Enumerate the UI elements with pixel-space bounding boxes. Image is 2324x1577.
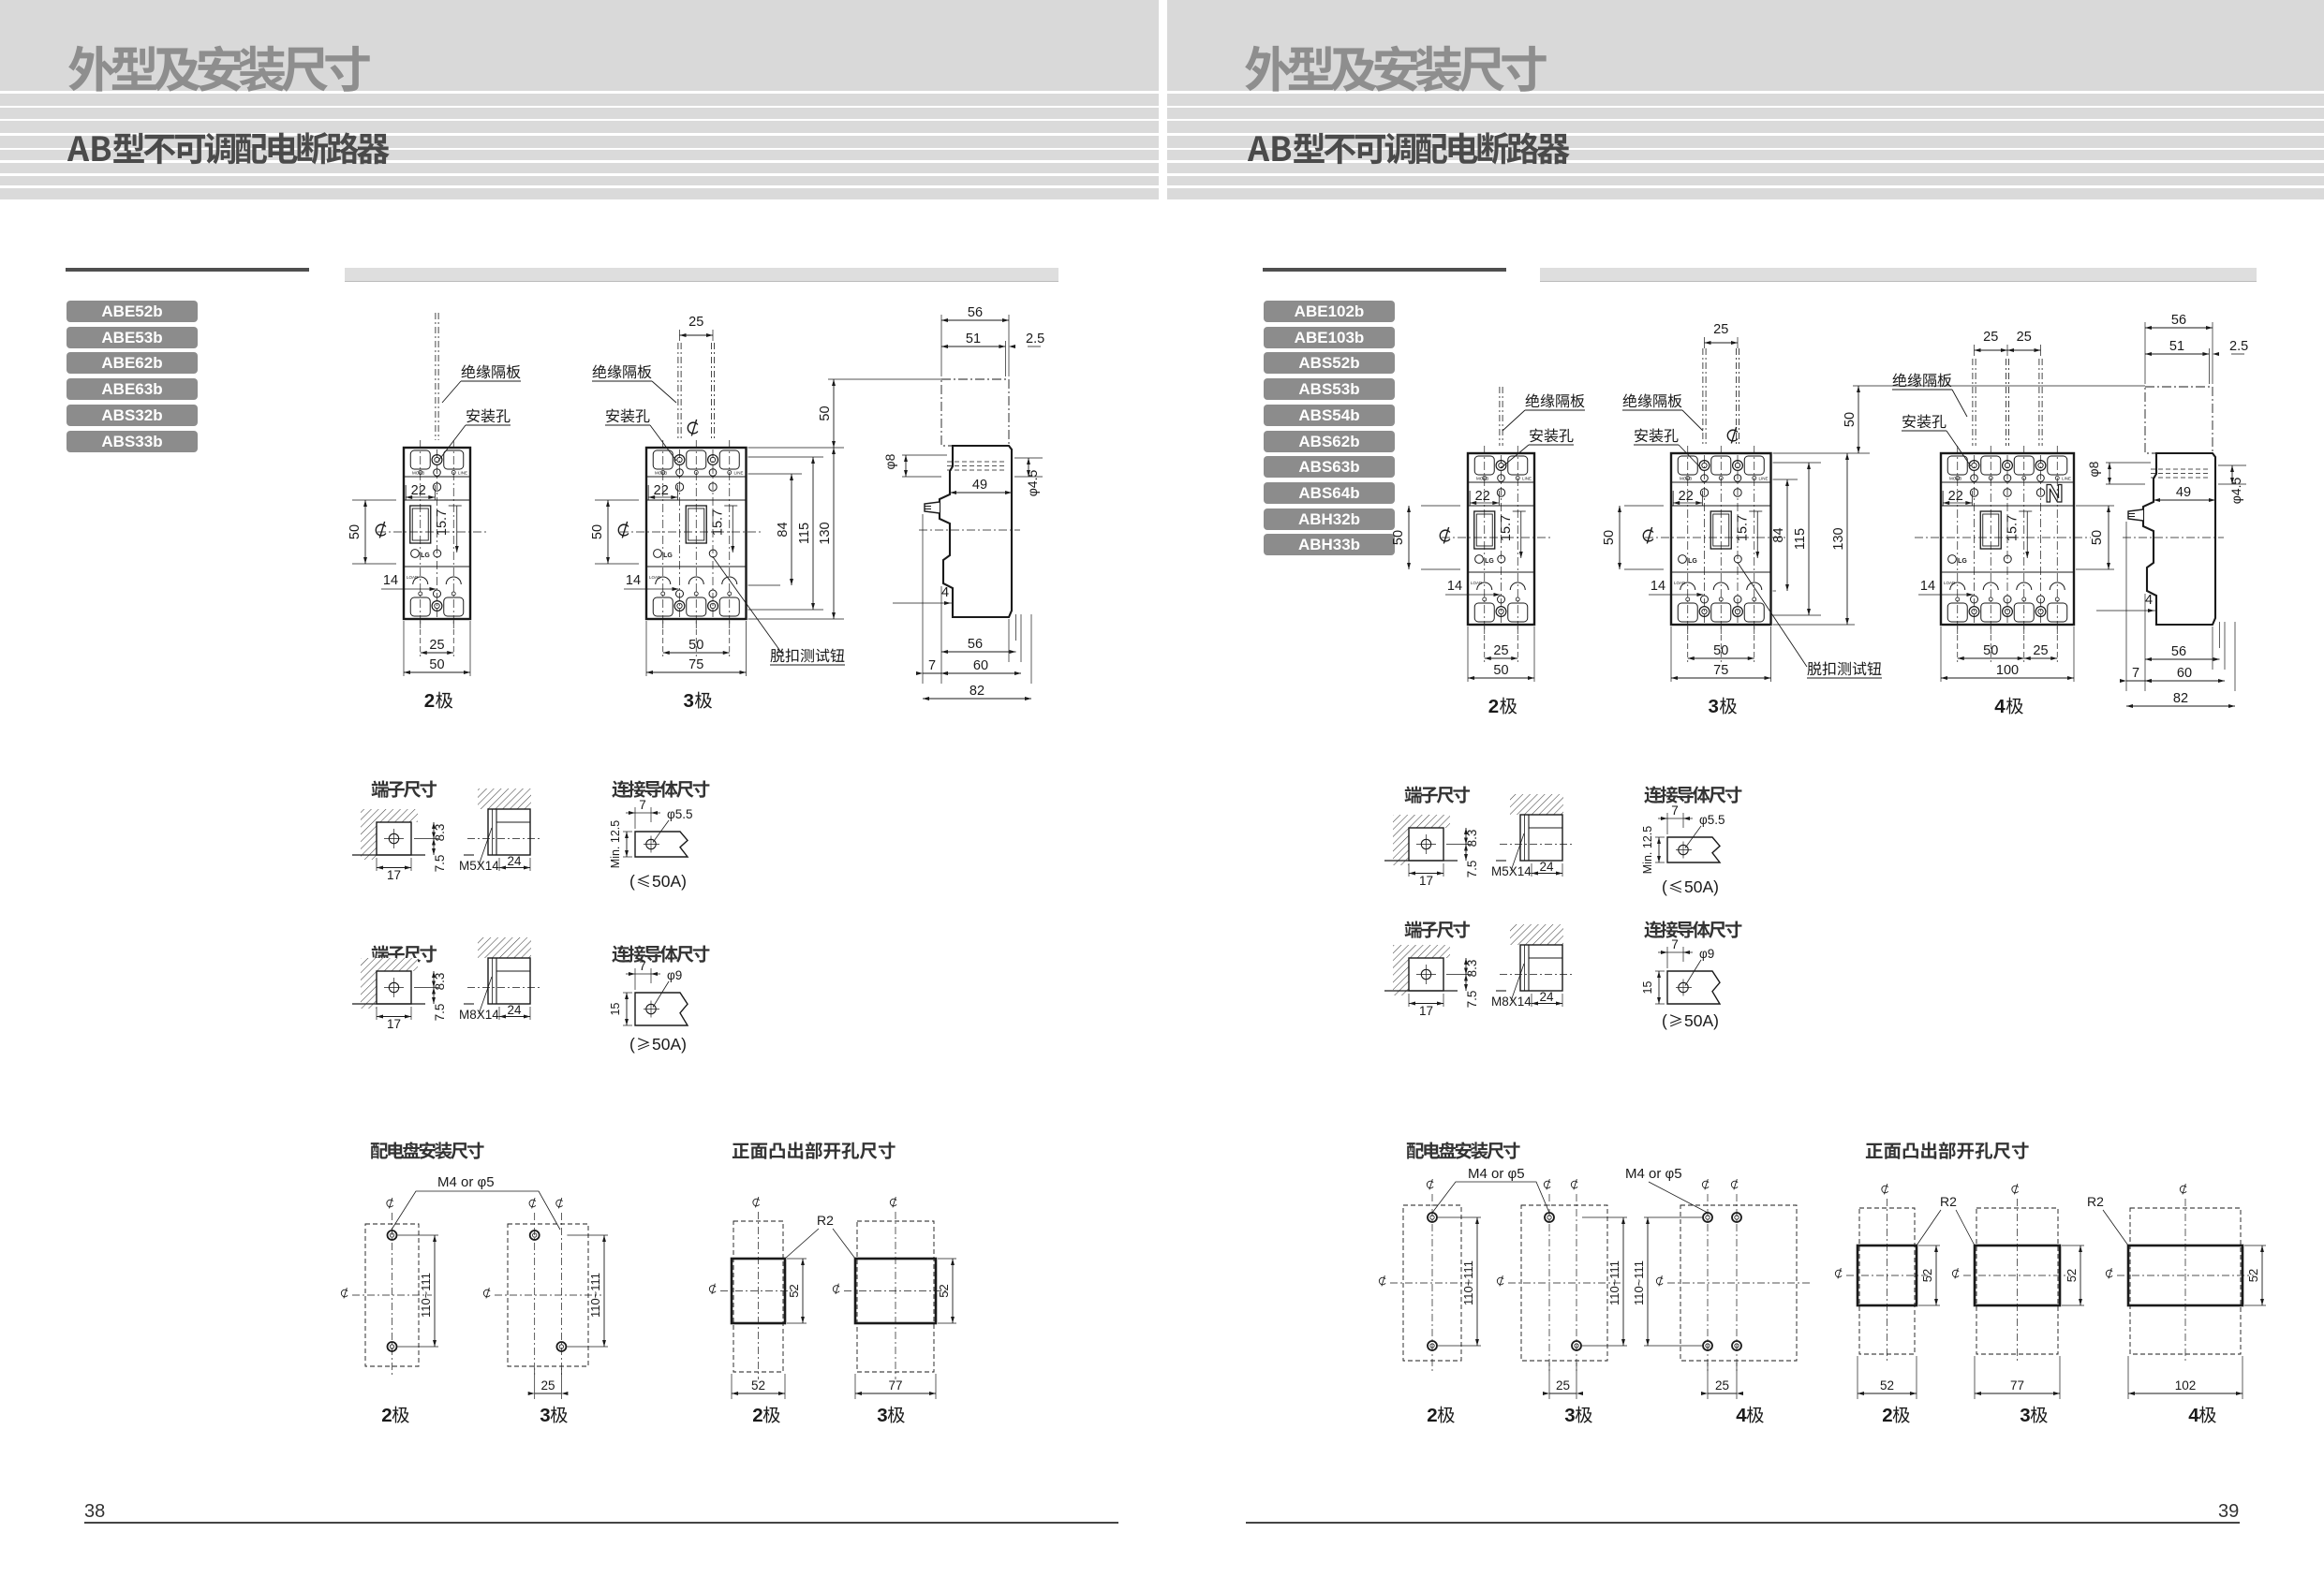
- svg-text:7: 7: [2132, 666, 2139, 681]
- svg-text:50: 50: [1391, 530, 1406, 545]
- svg-text:LOAD: LOAD: [649, 575, 661, 580]
- svg-text:LG: LG: [663, 553, 673, 559]
- svg-text:3: 3: [2020, 1405, 2030, 1426]
- svg-text:4: 4: [1736, 1405, 1747, 1426]
- svg-text:49: 49: [972, 478, 987, 493]
- svg-text:84: 84: [1771, 527, 1786, 542]
- svg-text:LG: LG: [1485, 558, 1494, 565]
- svg-text:24: 24: [1539, 860, 1554, 874]
- svg-text:110~111: 110~111: [588, 1273, 602, 1318]
- svg-text:φ5.5: φ5.5: [1699, 813, 1725, 827]
- svg-text:4: 4: [1994, 696, 2006, 717]
- svg-text:7: 7: [1671, 937, 1679, 951]
- svg-text:(: (: [629, 872, 635, 891]
- svg-text:52: 52: [937, 1284, 951, 1297]
- svg-text:Min. 12.5: Min. 12.5: [1641, 826, 1654, 874]
- svg-text:17: 17: [1419, 1004, 1433, 1018]
- svg-text:50: 50: [688, 638, 703, 653]
- svg-text:15.7: 15.7: [2005, 515, 2020, 541]
- svg-text:17: 17: [387, 868, 401, 882]
- svg-text:110~111: 110~111: [1632, 1260, 1646, 1305]
- svg-text:(: (: [1662, 877, 1667, 896]
- svg-text:15.7: 15.7: [1499, 515, 1514, 541]
- svg-text:3: 3: [540, 1405, 550, 1426]
- svg-text:52: 52: [787, 1284, 801, 1297]
- svg-text:25: 25: [1556, 1378, 1570, 1393]
- svg-text:51: 51: [2169, 339, 2184, 354]
- svg-text:3: 3: [1709, 696, 1719, 717]
- svg-text:φ9: φ9: [1699, 947, 1714, 961]
- svg-text:60: 60: [2177, 666, 2192, 681]
- svg-text:14: 14: [383, 573, 398, 588]
- svg-text:130: 130: [818, 522, 833, 544]
- svg-text:102: 102: [2175, 1378, 2197, 1393]
- svg-text:LOAD: LOAD: [1674, 581, 1686, 585]
- svg-text:7: 7: [639, 798, 646, 812]
- svg-text:50: 50: [348, 524, 363, 539]
- svg-text:115: 115: [1793, 528, 1808, 550]
- svg-text:M4 or φ5: M4 or φ5: [437, 1174, 495, 1190]
- svg-text:15.7: 15.7: [710, 509, 725, 536]
- svg-text:4: 4: [2188, 1405, 2199, 1426]
- svg-text:φ9: φ9: [667, 968, 682, 982]
- svg-text:14: 14: [626, 573, 641, 588]
- svg-text:φ4.5: φ4.5: [1025, 470, 1040, 497]
- svg-text:56: 56: [2171, 313, 2186, 328]
- svg-text:LG: LG: [1958, 558, 1967, 565]
- svg-text:25: 25: [1983, 330, 1998, 345]
- svg-text:56: 56: [2171, 644, 2186, 659]
- svg-text:φ4.5: φ4.5: [2228, 478, 2243, 505]
- svg-text:φ8: φ8: [2086, 461, 2101, 477]
- svg-text:R2: R2: [817, 1213, 834, 1228]
- svg-text:52: 52: [1880, 1378, 1894, 1393]
- svg-text:φ8: φ8: [882, 453, 897, 469]
- svg-text:N: N: [2045, 479, 2064, 508]
- svg-text:25: 25: [2017, 330, 2032, 345]
- svg-text:51: 51: [966, 332, 981, 346]
- svg-text:15: 15: [609, 1003, 622, 1016]
- svg-text:50: 50: [1713, 643, 1728, 658]
- svg-text:M4 or φ5: M4 or φ5: [1468, 1166, 1525, 1182]
- svg-text:75: 75: [688, 657, 703, 672]
- svg-text:φ5.5: φ5.5: [667, 807, 693, 821]
- svg-text:MCCB: MCCB: [412, 471, 424, 476]
- svg-text:LOAD: LOAD: [1471, 581, 1483, 585]
- svg-text:15.7: 15.7: [1735, 515, 1750, 541]
- svg-text:M5X14: M5X14: [459, 859, 499, 873]
- svg-text:50: 50: [818, 405, 833, 420]
- svg-text:14: 14: [1920, 579, 1935, 594]
- svg-text:56: 56: [968, 305, 983, 320]
- svg-text:2: 2: [1882, 1405, 1892, 1426]
- svg-text:MCCB: MCCB: [1949, 477, 1961, 481]
- svg-text:2: 2: [1488, 696, 1499, 717]
- svg-text:22: 22: [411, 483, 426, 498]
- svg-text:25: 25: [1715, 1378, 1729, 1393]
- svg-text:24: 24: [507, 1003, 522, 1017]
- svg-text:52: 52: [1920, 1269, 1934, 1282]
- svg-text:50A): 50A): [1684, 877, 1719, 896]
- svg-text:LOAD: LOAD: [407, 575, 419, 580]
- svg-text:52: 52: [2065, 1269, 2079, 1282]
- svg-text:2: 2: [752, 1405, 762, 1426]
- svg-text:LG: LG: [421, 553, 430, 559]
- svg-text:14: 14: [1447, 579, 1462, 594]
- svg-text:2: 2: [381, 1405, 392, 1426]
- svg-text:25: 25: [1493, 643, 1508, 658]
- svg-text:R2: R2: [1940, 1194, 1957, 1209]
- svg-text:24: 24: [507, 854, 522, 868]
- svg-text:M8X14: M8X14: [459, 1008, 499, 1022]
- svg-text:22: 22: [1475, 489, 1490, 504]
- svg-text:75: 75: [1713, 663, 1728, 678]
- svg-text:52: 52: [751, 1378, 765, 1393]
- svg-text:M8X14: M8X14: [1491, 995, 1532, 1009]
- svg-text:2: 2: [424, 690, 435, 712]
- svg-text:49: 49: [2176, 485, 2191, 500]
- svg-text:LOAD: LOAD: [1944, 581, 1956, 585]
- svg-text:82: 82: [970, 684, 984, 699]
- svg-text:3: 3: [1564, 1405, 1575, 1426]
- svg-text:7.5: 7.5: [433, 855, 447, 873]
- svg-text:MCCB: MCCB: [1476, 477, 1488, 481]
- svg-text:52: 52: [2246, 1269, 2260, 1282]
- svg-text:130: 130: [1831, 527, 1846, 550]
- svg-text:25: 25: [2033, 643, 2048, 658]
- svg-text:50: 50: [1602, 530, 1617, 545]
- svg-text:LG: LG: [1688, 558, 1697, 565]
- svg-text:4: 4: [941, 585, 949, 600]
- svg-text:84: 84: [776, 522, 791, 537]
- svg-text:50: 50: [1983, 643, 1998, 658]
- svg-text:50: 50: [590, 524, 605, 539]
- svg-text:56: 56: [968, 637, 983, 652]
- svg-text:2.5: 2.5: [2229, 339, 2248, 354]
- svg-text:50A): 50A): [1684, 1011, 1719, 1030]
- svg-text:LINE: LINE: [1522, 477, 1532, 481]
- svg-text:7.5: 7.5: [1465, 991, 1479, 1009]
- svg-text:17: 17: [387, 1017, 401, 1031]
- svg-text:24: 24: [1539, 990, 1554, 1004]
- svg-text:M5X14: M5X14: [1491, 864, 1532, 878]
- svg-text:25: 25: [688, 315, 703, 330]
- svg-text:60: 60: [973, 658, 988, 673]
- svg-text:110~111: 110~111: [1461, 1260, 1475, 1305]
- svg-text:100: 100: [1996, 663, 2019, 678]
- svg-text:110~111: 110~111: [419, 1273, 433, 1318]
- svg-text:7.5: 7.5: [433, 1004, 447, 1022]
- svg-text:Min. 12.5: Min. 12.5: [609, 820, 622, 868]
- svg-text:50: 50: [1493, 663, 1508, 678]
- svg-text:50: 50: [1843, 412, 1858, 427]
- svg-text:50: 50: [429, 657, 444, 672]
- svg-text:MCCB: MCCB: [1680, 477, 1692, 481]
- svg-text:115: 115: [797, 523, 812, 544]
- svg-text:82: 82: [2173, 691, 2188, 706]
- svg-text:LINE: LINE: [458, 471, 467, 476]
- svg-text:22: 22: [1948, 489, 1963, 504]
- svg-text:50A): 50A): [652, 1035, 687, 1054]
- svg-text:14: 14: [1650, 579, 1665, 594]
- svg-text:15.7: 15.7: [435, 509, 450, 536]
- svg-text:15: 15: [1641, 981, 1654, 995]
- svg-text:2: 2: [1427, 1405, 1437, 1426]
- svg-text:77: 77: [2010, 1378, 2024, 1393]
- svg-text:25: 25: [1713, 322, 1728, 337]
- svg-text:77: 77: [888, 1378, 902, 1393]
- svg-text:2.5: 2.5: [1026, 332, 1044, 346]
- svg-text:17: 17: [1419, 874, 1433, 888]
- svg-text:50: 50: [2090, 530, 2105, 545]
- svg-text:25: 25: [541, 1378, 555, 1393]
- svg-text:(: (: [1662, 1011, 1667, 1030]
- svg-text:(: (: [629, 1035, 635, 1054]
- svg-text:3: 3: [877, 1405, 887, 1426]
- svg-text:50A): 50A): [652, 872, 687, 891]
- svg-text:3: 3: [684, 690, 694, 712]
- svg-text:7: 7: [1671, 803, 1679, 818]
- svg-text:22: 22: [1679, 489, 1694, 504]
- svg-text:MCCB: MCCB: [655, 471, 667, 476]
- svg-text:7: 7: [639, 959, 646, 973]
- svg-text:LINE: LINE: [1758, 477, 1768, 481]
- svg-text:4: 4: [2145, 593, 2153, 608]
- svg-text:25: 25: [429, 638, 444, 653]
- svg-text:110~111: 110~111: [1607, 1260, 1621, 1305]
- svg-text:7: 7: [928, 658, 936, 673]
- svg-text:22: 22: [654, 483, 669, 498]
- svg-text:M4 or φ5: M4 or φ5: [1625, 1166, 1682, 1182]
- svg-text:LINE: LINE: [733, 471, 743, 476]
- svg-text:7.5: 7.5: [1465, 861, 1479, 878]
- svg-text:R2: R2: [2087, 1194, 2104, 1209]
